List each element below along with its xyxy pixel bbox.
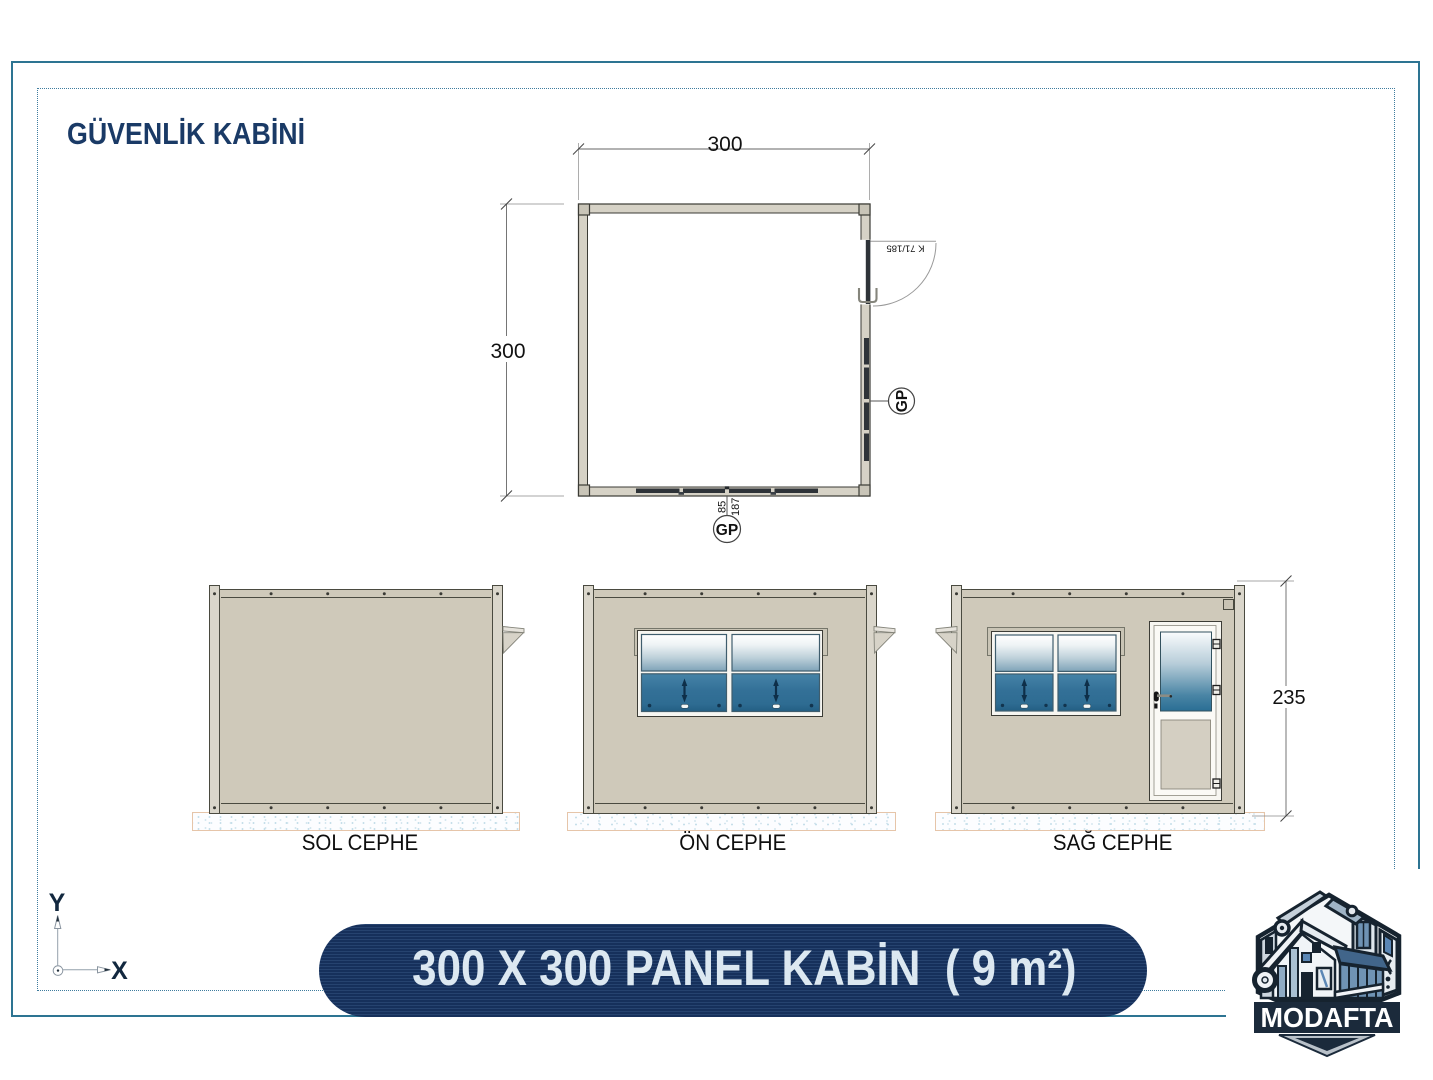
svg-text:Y: Y: [49, 889, 66, 917]
svg-text:85: 85: [717, 501, 729, 513]
svg-text:MODAFTA: MODAFTA: [1261, 1002, 1394, 1033]
svg-text:K 71/185: K 71/185: [886, 243, 924, 254]
svg-text:300: 300: [707, 133, 742, 156]
svg-text:X: X: [111, 957, 128, 985]
svg-text:GP: GP: [716, 522, 738, 539]
svg-text:187: 187: [730, 498, 742, 516]
svg-text:235: 235: [1272, 687, 1305, 709]
svg-text:GP: GP: [894, 390, 911, 412]
svg-text:300: 300: [490, 340, 525, 363]
